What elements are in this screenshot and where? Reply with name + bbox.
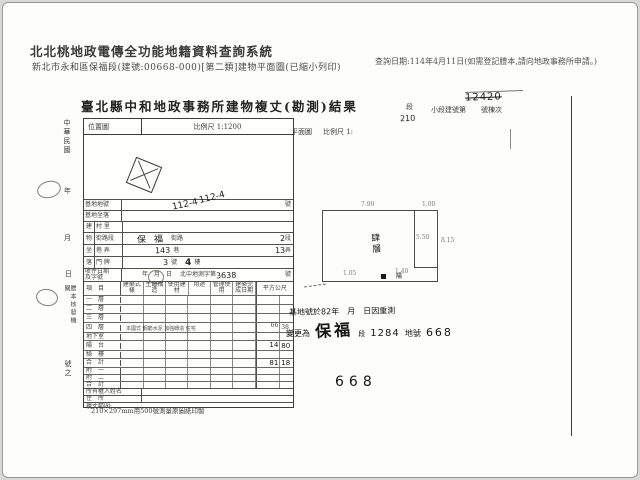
floor-table-header: 項 目 建築式樣 主體構造 使用建材 用途 管理使用 建築完成日期 平方公尺 [84, 281, 293, 295]
village-label: 村 里 [95, 222, 123, 232]
plan-label: 平面圖 [291, 127, 312, 137]
row-door-number: 落 門 牌 3 號 4 樓 [84, 256, 293, 268]
big-building-number: 668 [335, 374, 377, 390]
floor-row-balcony: 陽 台1480 [84, 340, 293, 350]
plan-dim-bottom: 1.40 [395, 269, 408, 275]
receipt-number: 3638 [216, 270, 237, 280]
field-building-suffix: 號棟次 [481, 105, 502, 115]
margin-issuer-label: 謄本核發機關 [63, 285, 75, 327]
alley-value: 13 [275, 246, 285, 255]
annotation-lot-label: 地號 [405, 329, 421, 338]
scanned-document-page: 北北桃地政電傳全功能地籍資料查詢系統 新北市永和區保福段(建號:00668-00… [2, 2, 638, 478]
plan-inner-wall-horizontal [415, 267, 437, 268]
field-section-suffix: 段 [406, 102, 413, 112]
floor-row-2: 二 層 [84, 304, 293, 313]
floor-row-total: 合 計8118 [84, 358, 293, 367]
lane-mid-label: 巷 [173, 248, 179, 254]
row-street: 物 街路段 保福 街路 2 段 [84, 232, 293, 244]
small-vertical-mark [510, 129, 511, 149]
floor-row-annex-2: 附 二 [84, 374, 293, 381]
crossed-out-building-number: 12420 [465, 91, 502, 103]
group-char-luo: 落 [84, 257, 95, 268]
survey-form-panel: 位置圖 比例尺 1:1200 112-4 基地地號 112-4 號 基地坐落 建… [83, 118, 294, 408]
street-section-suffix: 段 [285, 236, 291, 242]
annotation-prefix: 變更為 [286, 329, 310, 338]
document-subtitle: 新北市永和區保福段(建號:00668-000)[第二類]建物平面圖(已縮小列印) [32, 60, 341, 73]
lot-number-label: 基地地號 [84, 200, 122, 210]
floor-row-3: 三 層 [84, 313, 293, 322]
form-title: 臺北縣中和地政事務所建物複丈(勘測)結果 [81, 96, 358, 115]
field-city-suffix: 市 [346, 102, 353, 112]
floor-item-header: 項 目 [84, 282, 121, 295]
field-subsection-label: 小段建號第 [431, 105, 466, 115]
door-suffix: 樓 [194, 260, 200, 266]
row-owner: 所有權人姓名 [84, 388, 293, 395]
plan-dim-right: 8.15 [441, 238, 454, 244]
receipt-label: 收件日期 及字號 [84, 269, 122, 281]
street-section-value: 2 [280, 234, 285, 243]
plan-dim-inner: 5.50 [416, 235, 429, 241]
annotation-section-name: 保福 [314, 316, 353, 342]
plan-ink-mark [381, 274, 386, 279]
margin-day-label: 日 [65, 269, 72, 279]
plan-inner-wall-vertical [414, 211, 415, 268]
group-char-zuo: 坐 [84, 245, 95, 256]
area-header: 平方公尺 [256, 282, 293, 295]
stamp-mark-1 [35, 178, 62, 200]
row-receipt: 收件日期 及字號 年 月 日 北中地測字第 3638 號 [84, 268, 293, 281]
plan-scale-value: 210 [400, 114, 416, 124]
lot-number-suffix: 號 [285, 202, 291, 208]
query-date-note: 查詢日期:114年4月11日(如需登記謄本,請向地政事務所申請。) [375, 56, 625, 67]
row-owner-address: 住 所 [84, 395, 293, 402]
plan-scale-label: 比例尺 1: [323, 127, 353, 137]
annotation-line-2: 變更為 保福 段 1284 地號 668 [286, 317, 453, 341]
margin-number-suffix: 號之 [63, 360, 73, 384]
plan-dashed-mark [304, 283, 326, 287]
location-map-header: 位置圖 比例尺 1:1200 [84, 119, 293, 135]
lane-suffix: 弄 [285, 248, 291, 254]
col-header-management: 管理使用 [211, 282, 233, 295]
street-label: 街路段 [95, 233, 123, 244]
col-header-material: 使用建材 [166, 282, 188, 295]
row-site-location: 基地坐落 [84, 210, 293, 221]
street-mid-label: 街路 [171, 236, 183, 242]
location-map-scale: 比例尺 1:1200 [142, 122, 293, 132]
system-title: 北北桃地政電傳全功能地籍資料查詢系統 [30, 41, 273, 60]
margin-month-label: 月 [64, 233, 71, 243]
plan-dim-top: 7.90 [361, 202, 374, 208]
door-number-value: 3 [163, 258, 168, 267]
floor-row-annex-1: 附 一 [84, 367, 293, 374]
receipt-date-stamp [148, 270, 164, 284]
building-plan-outline: 肆層 陽 [322, 210, 438, 282]
floor-row-basement: 地下室 [84, 332, 293, 340]
col-header-structure: 主體構造 [144, 282, 166, 295]
site-location-label: 基地坐落 [84, 211, 122, 221]
floor-row-arcade: 騎 樓 [84, 350, 293, 358]
row-village: 建 村 里 [84, 221, 293, 232]
lane-value: 143 [155, 246, 171, 256]
plan-floor-label: 肆層 [368, 232, 384, 259]
row-lane: 坐 巷 弄 143 巷 13 弄 [84, 244, 293, 256]
col-header-use: 用途 [189, 282, 211, 295]
location-map-area: 112-4 [84, 135, 293, 199]
group-char-wu: 物 [84, 233, 95, 244]
plan-dim-bottom-left: 1.05 [343, 271, 356, 277]
floor-number-value: 4 [185, 257, 192, 267]
annotation-section-suffix: 段 [358, 330, 365, 338]
stamp-mark-2 [35, 287, 60, 308]
lane-label: 巷 弄 [95, 245, 123, 256]
annotation-lot-number: 1284 [370, 328, 399, 339]
owner-address-label: 住 所 [84, 396, 142, 402]
floor-row-1: 一 層 [84, 295, 293, 304]
floor-row-total-2: 合 計 [84, 381, 293, 388]
receipt-suffix: 號 [285, 272, 291, 278]
row-lot-number: 基地地號 112-4 號 [84, 199, 293, 210]
location-plot-symbol [126, 157, 162, 193]
margin-era-label: 中華民國 [62, 119, 72, 159]
floor-4-note: 本國式 鋼筋水泥 加強磚造 住宅 [126, 325, 196, 332]
fold-line [571, 96, 572, 436]
floor-row-4: 四 層6638本國式 鋼筋水泥 加強磚造 住宅 [84, 322, 293, 332]
group-char-jian: 建 [84, 222, 95, 232]
col-header-completion: 建築完成日期 [233, 282, 255, 295]
location-map-label: 位置圖 [84, 119, 142, 134]
annotation-building-number: 668 [426, 326, 453, 339]
col-header-style: 建築式樣 [121, 282, 143, 295]
plan-dim-top-right: 1.00 [422, 202, 435, 208]
door-label: 門 牌 [95, 257, 123, 268]
paper-spec-note: 210×297mm用500號測量原圖紙印製 [91, 408, 205, 414]
receipt-doc-label: 北中地測字第 [180, 272, 216, 278]
street-name-value: 保福 [137, 231, 171, 245]
margin-year-label: 年 [64, 186, 71, 196]
door-mid-label: 號 [171, 260, 177, 266]
